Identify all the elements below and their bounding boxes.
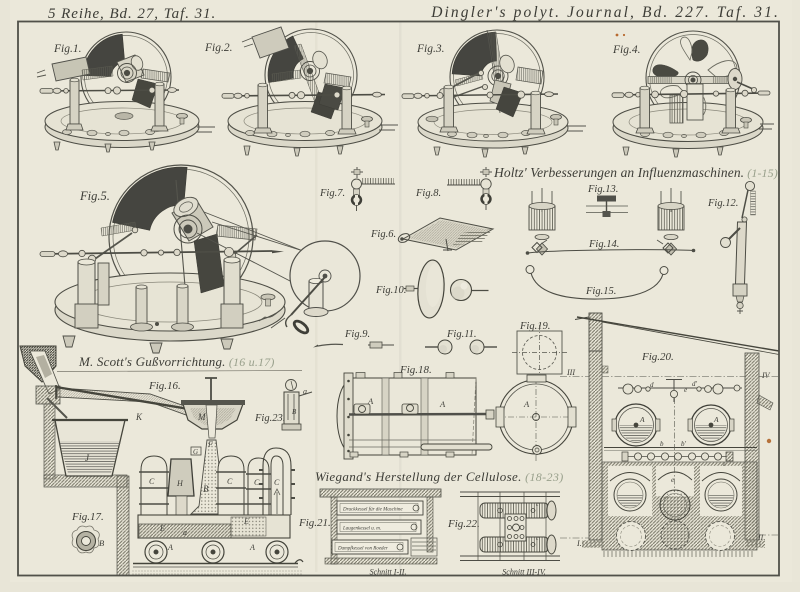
svg-text:Fig.13.: Fig.13. — [587, 184, 618, 195]
svg-text:c: c — [536, 502, 539, 508]
svg-text:Fig.8.: Fig.8. — [415, 188, 441, 199]
svg-text:IV: IV — [761, 371, 771, 380]
svg-text:b: b — [660, 440, 664, 448]
svg-text:E: E — [243, 517, 249, 526]
svg-text:b': b' — [681, 440, 687, 448]
svg-text:B: B — [99, 538, 104, 548]
svg-text:Fig.18.: Fig.18. — [399, 364, 432, 376]
svg-text:Laugenkessel u. m.: Laugenkessel u. m. — [342, 527, 381, 532]
svg-text:Fig.14.: Fig.14. — [588, 239, 619, 250]
svg-text:c: c — [536, 536, 539, 542]
svg-text:Fig.20.: Fig.20. — [641, 351, 674, 363]
svg-text:Fig.5.: Fig.5. — [79, 189, 110, 203]
svg-text:C: C — [227, 477, 233, 486]
svg-text:a: a — [183, 528, 187, 537]
svg-text:Wiegand's Herstellung der Cell: Wiegand's Herstellung der Cellulose. (18… — [315, 469, 564, 484]
svg-text:d: d — [650, 381, 654, 389]
svg-text:A: A — [523, 399, 530, 409]
svg-text:M: M — [197, 412, 206, 422]
svg-text:Druckkessel für die Maschine: Druckkessel für die Maschine — [342, 508, 403, 513]
svg-text:Fig.1.: Fig.1. — [53, 43, 81, 55]
svg-text:Fig.10.: Fig.10. — [375, 285, 406, 296]
svg-text:G: G — [193, 448, 198, 456]
svg-text:Fig.6.: Fig.6. — [370, 229, 396, 240]
svg-text:Fig.11.: Fig.11. — [446, 329, 477, 340]
svg-text:Fig.9.: Fig.9. — [344, 329, 370, 340]
svg-text:A: A — [639, 415, 645, 424]
svg-text:Fig.21.: Fig.21. — [298, 517, 331, 529]
svg-text:Fig.17.: Fig.17. — [71, 511, 104, 523]
svg-text:Fig.22.: Fig.22. — [447, 518, 480, 530]
svg-text:Fig.16.: Fig.16. — [148, 380, 181, 392]
svg-text:B: B — [292, 408, 297, 416]
svg-text:Fig.2.: Fig.2. — [204, 42, 232, 54]
svg-text:A: A — [439, 399, 446, 409]
svg-text:A: A — [367, 396, 374, 406]
svg-text:Holtz' Verbesserungen an Influ: Holtz' Verbesserungen an Influenzmaschin… — [493, 165, 778, 180]
svg-text:d': d' — [692, 380, 698, 388]
svg-text:Dampfkessel von Roeder: Dampfkessel von Roeder — [337, 547, 388, 552]
svg-text:A: A — [249, 543, 255, 552]
svg-text:C: C — [274, 478, 280, 487]
svg-text:Fig.12.: Fig.12. — [707, 198, 738, 209]
svg-text:A: A — [167, 543, 173, 552]
svg-text:I.: I. — [576, 539, 582, 548]
svg-text:Fig.4.: Fig.4. — [612, 44, 640, 56]
svg-text:M. Scott's Gußvorrichtung. (16: M. Scott's Gußvorrichtung. (16 u.17) — [78, 354, 275, 369]
svg-text:E: E — [159, 524, 165, 533]
svg-text:Fig.15.: Fig.15. — [585, 286, 616, 297]
svg-text:III: III — [566, 368, 575, 377]
svg-text:Fig.7.: Fig.7. — [319, 188, 345, 199]
svg-text:C: C — [149, 477, 155, 486]
svg-text:Fig.3.: Fig.3. — [416, 43, 444, 55]
svg-text:a: a — [303, 387, 307, 396]
svg-text:B: B — [203, 484, 209, 494]
svg-text:A: A — [713, 415, 719, 424]
svg-text:K: K — [135, 412, 143, 422]
svg-text:5 Reihe, Bd. 27, Taf. 31.: 5 Reihe, Bd. 27, Taf. 31. — [48, 6, 216, 22]
svg-text:e: e — [684, 386, 687, 394]
svg-text:Fig.19.: Fig.19. — [519, 321, 550, 332]
svg-text:Fig.23.: Fig.23. — [254, 413, 285, 424]
svg-text:C: C — [254, 478, 260, 487]
svg-text:Dingler's polyt. Journal, Bd.: Dingler's polyt. Journal, Bd. 227. Taf. … — [430, 4, 780, 21]
